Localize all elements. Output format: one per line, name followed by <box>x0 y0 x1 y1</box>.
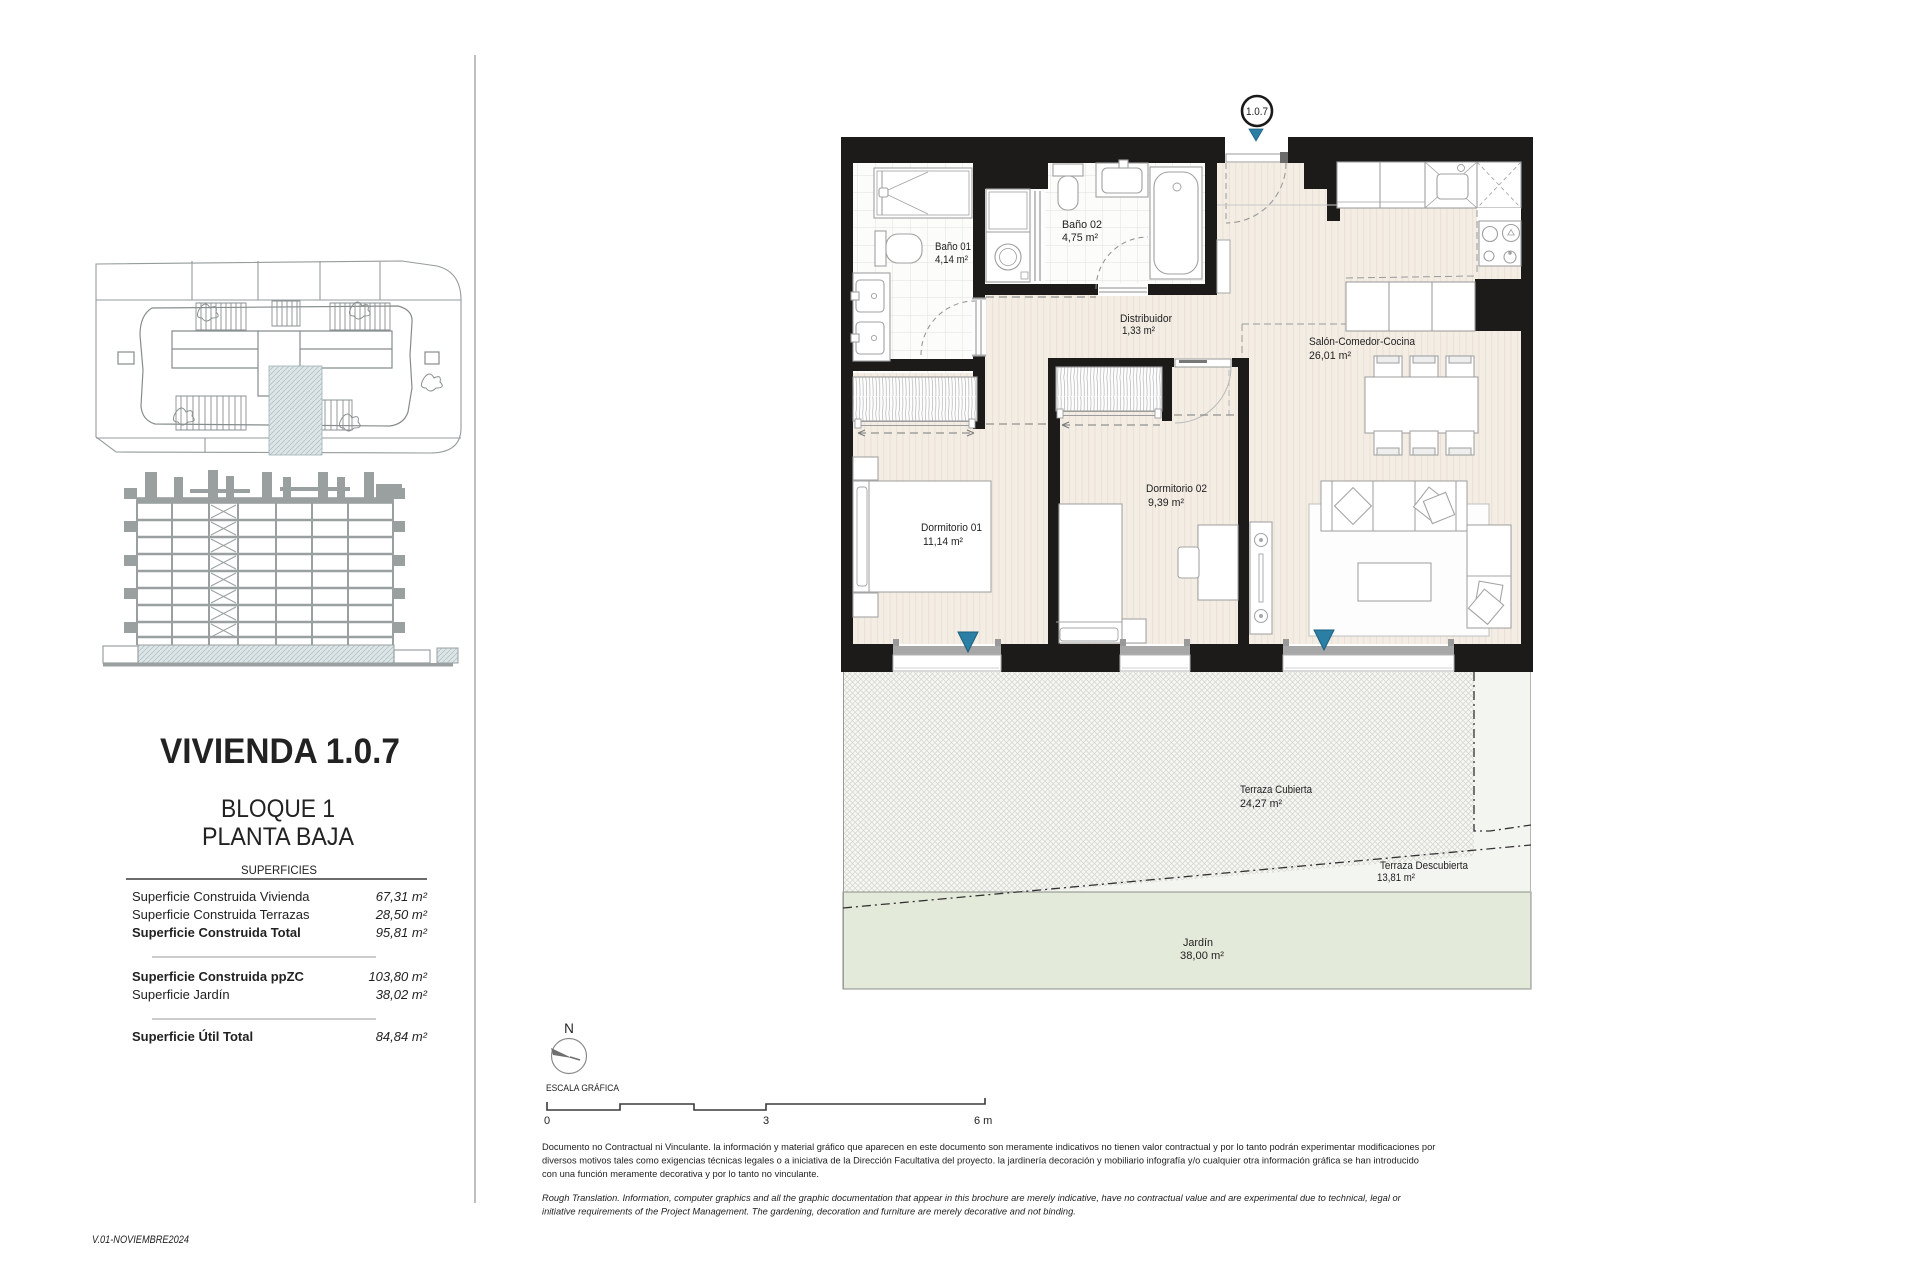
svg-text:0: 0 <box>544 1115 550 1127</box>
svg-text:Rough Translation. Information: Rough Translation. Information, computer… <box>542 1193 1402 1203</box>
svg-text:Documento no Contractual ni Vi: Documento no Contractual ni Vinculante. … <box>542 1142 1435 1152</box>
svg-text:38,00 m²: 38,00 m² <box>1180 950 1224 962</box>
svg-text:ESCALA GRÁFICA: ESCALA GRÁFICA <box>546 1083 620 1094</box>
svg-text:diversos motivos tales como e: diversos motivos tales como exigencias t… <box>542 1156 1419 1166</box>
svg-text:Superficie Útil Total: Superficie Útil Total <box>132 1029 253 1044</box>
svg-text:Superficie Construida Total: Superficie Construida Total <box>132 925 301 940</box>
svg-text:103,80 m²: 103,80 m² <box>368 969 427 984</box>
svg-text:95,81 m²: 95,81 m² <box>376 925 428 940</box>
svg-text:Superficie Jardín: Superficie Jardín <box>132 987 230 1002</box>
svg-text:9,39 m²: 9,39 m² <box>1148 497 1184 509</box>
svg-text:SUPERFICIES: SUPERFICIES <box>241 863 317 877</box>
svg-text:84,84 m²: 84,84 m² <box>376 1029 428 1044</box>
svg-text:Dormitorio 01: Dormitorio 01 <box>921 522 982 534</box>
svg-text:13,81 m²: 13,81 m² <box>1377 872 1415 884</box>
svg-text:Jardín: Jardín <box>1183 937 1213 949</box>
svg-text:Dormitorio 02: Dormitorio 02 <box>1146 483 1207 495</box>
svg-text:6 m: 6 m <box>974 1115 992 1127</box>
svg-text:24,27 m²: 24,27 m² <box>1240 798 1282 810</box>
svg-text:Terraza Descubierta: Terraza Descubierta <box>1380 860 1469 872</box>
svg-text:initiative requirements of the: initiative requirements of the Project M… <box>542 1207 1076 1217</box>
svg-text:4,75 m²: 4,75 m² <box>1062 232 1098 244</box>
svg-text:4,14 m²: 4,14 m² <box>935 254 968 266</box>
svg-text:1.0.7: 1.0.7 <box>1246 106 1268 118</box>
svg-text:Distribuidor: Distribuidor <box>1120 313 1172 325</box>
svg-text:Superficie Construida Vivienda: Superficie Construida Vivienda <box>132 889 310 904</box>
svg-text:V.01-NOVIEMBRE2024: V.01-NOVIEMBRE2024 <box>92 1234 189 1246</box>
svg-text:Baño 01: Baño 01 <box>935 241 971 253</box>
svg-text:38,02 m²: 38,02 m² <box>376 987 428 1002</box>
svg-text:Salón-Comedor-Cocina: Salón-Comedor-Cocina <box>1309 336 1416 348</box>
svg-text:11,14 m²: 11,14 m² <box>923 536 963 548</box>
svg-text:28,50 m²: 28,50 m² <box>375 907 428 922</box>
svg-text:BLOQUE 1: BLOQUE 1 <box>221 795 335 823</box>
svg-text:Superficie Construida ppZC: Superficie Construida ppZC <box>132 969 305 984</box>
svg-text:Baño 02: Baño 02 <box>1062 219 1102 231</box>
svg-text:26,01 m²: 26,01 m² <box>1309 350 1351 362</box>
svg-text:1,33 m²: 1,33 m² <box>1122 325 1155 337</box>
svg-text:3: 3 <box>763 1115 769 1127</box>
svg-text:VIVIENDA 1.0.7: VIVIENDA 1.0.7 <box>160 732 400 771</box>
svg-text:con una función meramente deco: con una función meramente decorativa y p… <box>542 1169 819 1179</box>
svg-text:N: N <box>564 1021 574 1036</box>
svg-text:Terraza Cubierta: Terraza Cubierta <box>1240 784 1313 796</box>
svg-text:Superficie Construida Terrazas: Superficie Construida Terrazas <box>132 907 310 922</box>
svg-text:PLANTA BAJA: PLANTA BAJA <box>202 823 354 851</box>
svg-text:67,31 m²: 67,31 m² <box>376 889 428 904</box>
